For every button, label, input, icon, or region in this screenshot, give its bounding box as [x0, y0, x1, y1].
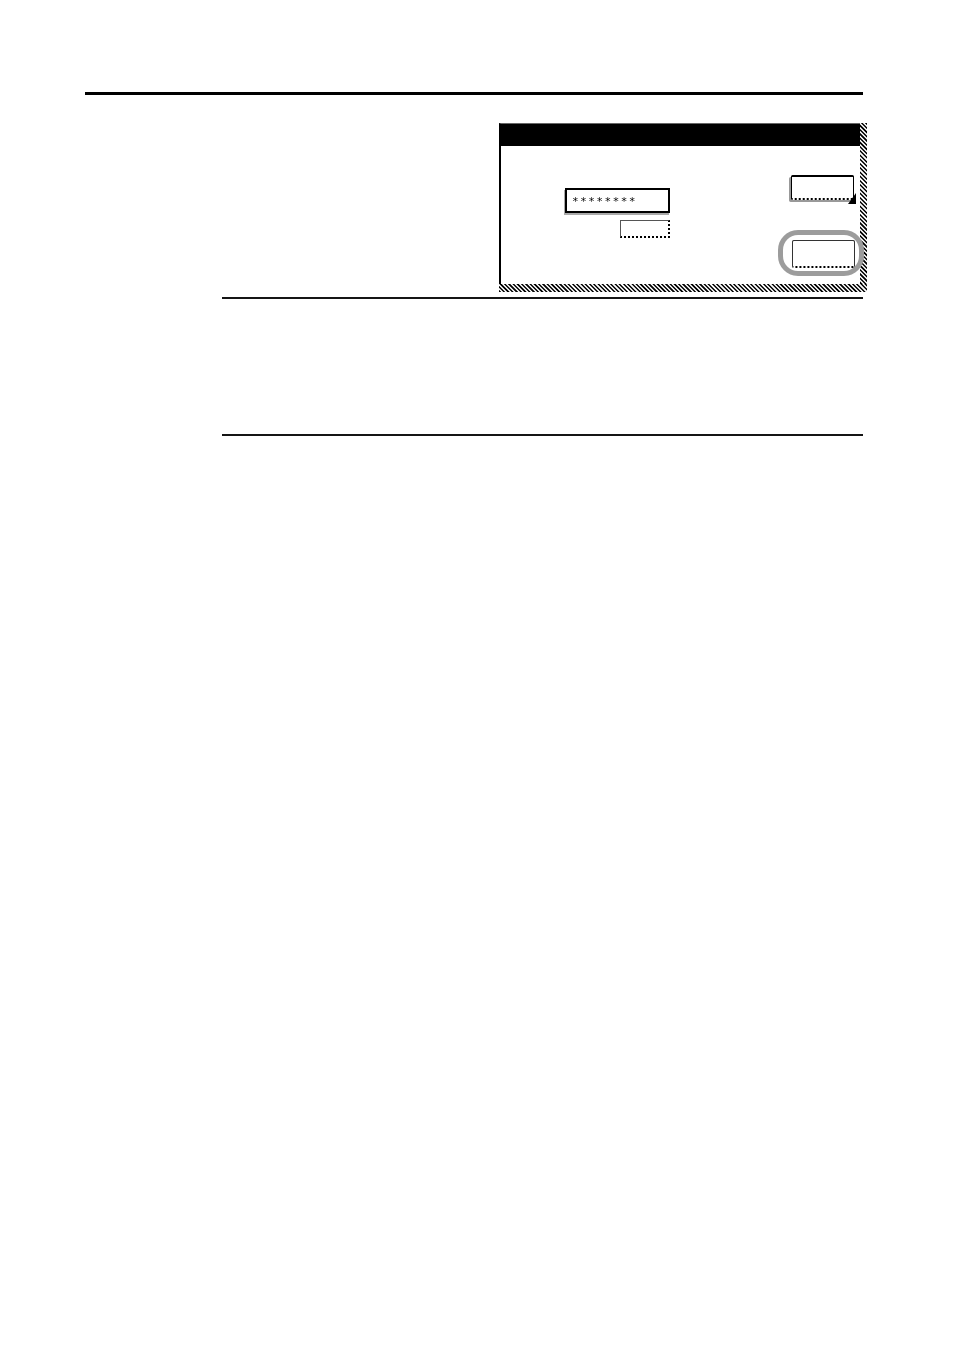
- panel-shadow-right: [860, 123, 867, 292]
- bottom-divider-rule: [222, 434, 863, 436]
- touchscreen-panel: ********: [499, 123, 860, 284]
- masked-code-text: ********: [567, 195, 637, 208]
- middle-divider-rule: [222, 297, 863, 299]
- panel-shadow-bottom: [499, 284, 867, 292]
- pointer-arrow-icon: [848, 193, 856, 204]
- upper-right-key-button[interactable]: [791, 175, 854, 200]
- management-code-input[interactable]: ********: [565, 188, 670, 213]
- highlight-ring: [778, 230, 864, 276]
- panel-title-bar: [501, 124, 860, 146]
- manual-page: ********: [0, 0, 954, 1350]
- top-divider-rule: [85, 92, 863, 95]
- entry-key-button[interactable]: [620, 220, 670, 238]
